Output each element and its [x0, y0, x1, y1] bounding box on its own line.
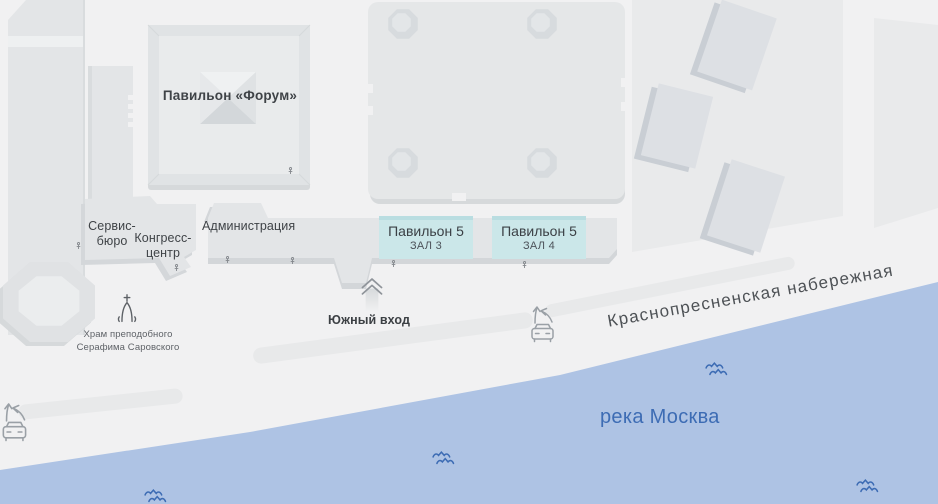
- sidewalk-strip: [544, 256, 796, 319]
- left-annex-building-shape: [88, 66, 134, 218]
- forum-pavilion-shape: [148, 25, 310, 190]
- forum-roof-pyramid: [200, 72, 256, 124]
- service-bureau-building-shape: [81, 196, 196, 281]
- hall-title: Павильон 5: [379, 223, 473, 239]
- riverside-district-shape: [874, 18, 938, 228]
- hall-subtitle: ЗАЛ 3: [379, 240, 473, 252]
- pavilion5-hall3[interactable]: Павильон 5 ЗАЛ 3: [379, 216, 473, 259]
- hall-title: Павильон 5: [492, 223, 586, 239]
- hall-subtitle: ЗАЛ 4: [492, 240, 586, 252]
- pavilion5-hall4[interactable]: Павильон 5 ЗАЛ 4: [492, 216, 586, 259]
- sidewalk-strip: [18, 388, 184, 420]
- large-pavilion-building-shape: [366, 2, 628, 204]
- sidewalk-strip: [252, 311, 534, 364]
- venue-map[interactable]: Павильон 5 ЗАЛ 3 Павильон 5 ЗАЛ 4: [0, 0, 938, 504]
